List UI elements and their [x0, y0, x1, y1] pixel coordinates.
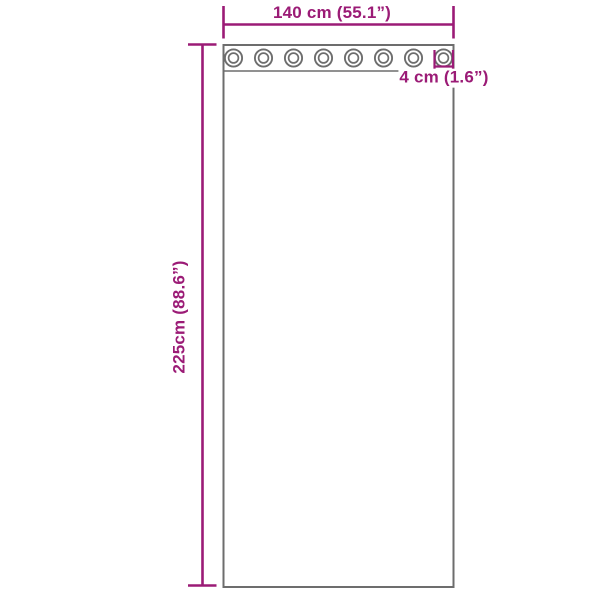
diagram-drawing	[0, 0, 600, 600]
curtain-outline	[224, 45, 454, 587]
grommet-icon	[289, 53, 299, 63]
grommet-icon	[349, 53, 359, 63]
dimension-diagram: 140 cm (55.1”) 225cm (88.6”) 4 cm (1.6”)	[0, 0, 600, 600]
grommet-icon	[319, 53, 329, 63]
grommet-icon	[439, 53, 449, 63]
grommet-icon	[259, 53, 269, 63]
grommet-icon	[409, 53, 419, 63]
height-dimension	[188, 45, 217, 586]
width-dimension-label: 140 cm (55.1”)	[273, 4, 391, 23]
grommet-size-label: 4 cm (1.6”)	[398, 69, 489, 88]
grommet-icon	[229, 53, 239, 63]
grommet-icon	[379, 53, 389, 63]
height-dimension-label: 225cm (88.6”)	[171, 260, 190, 373]
